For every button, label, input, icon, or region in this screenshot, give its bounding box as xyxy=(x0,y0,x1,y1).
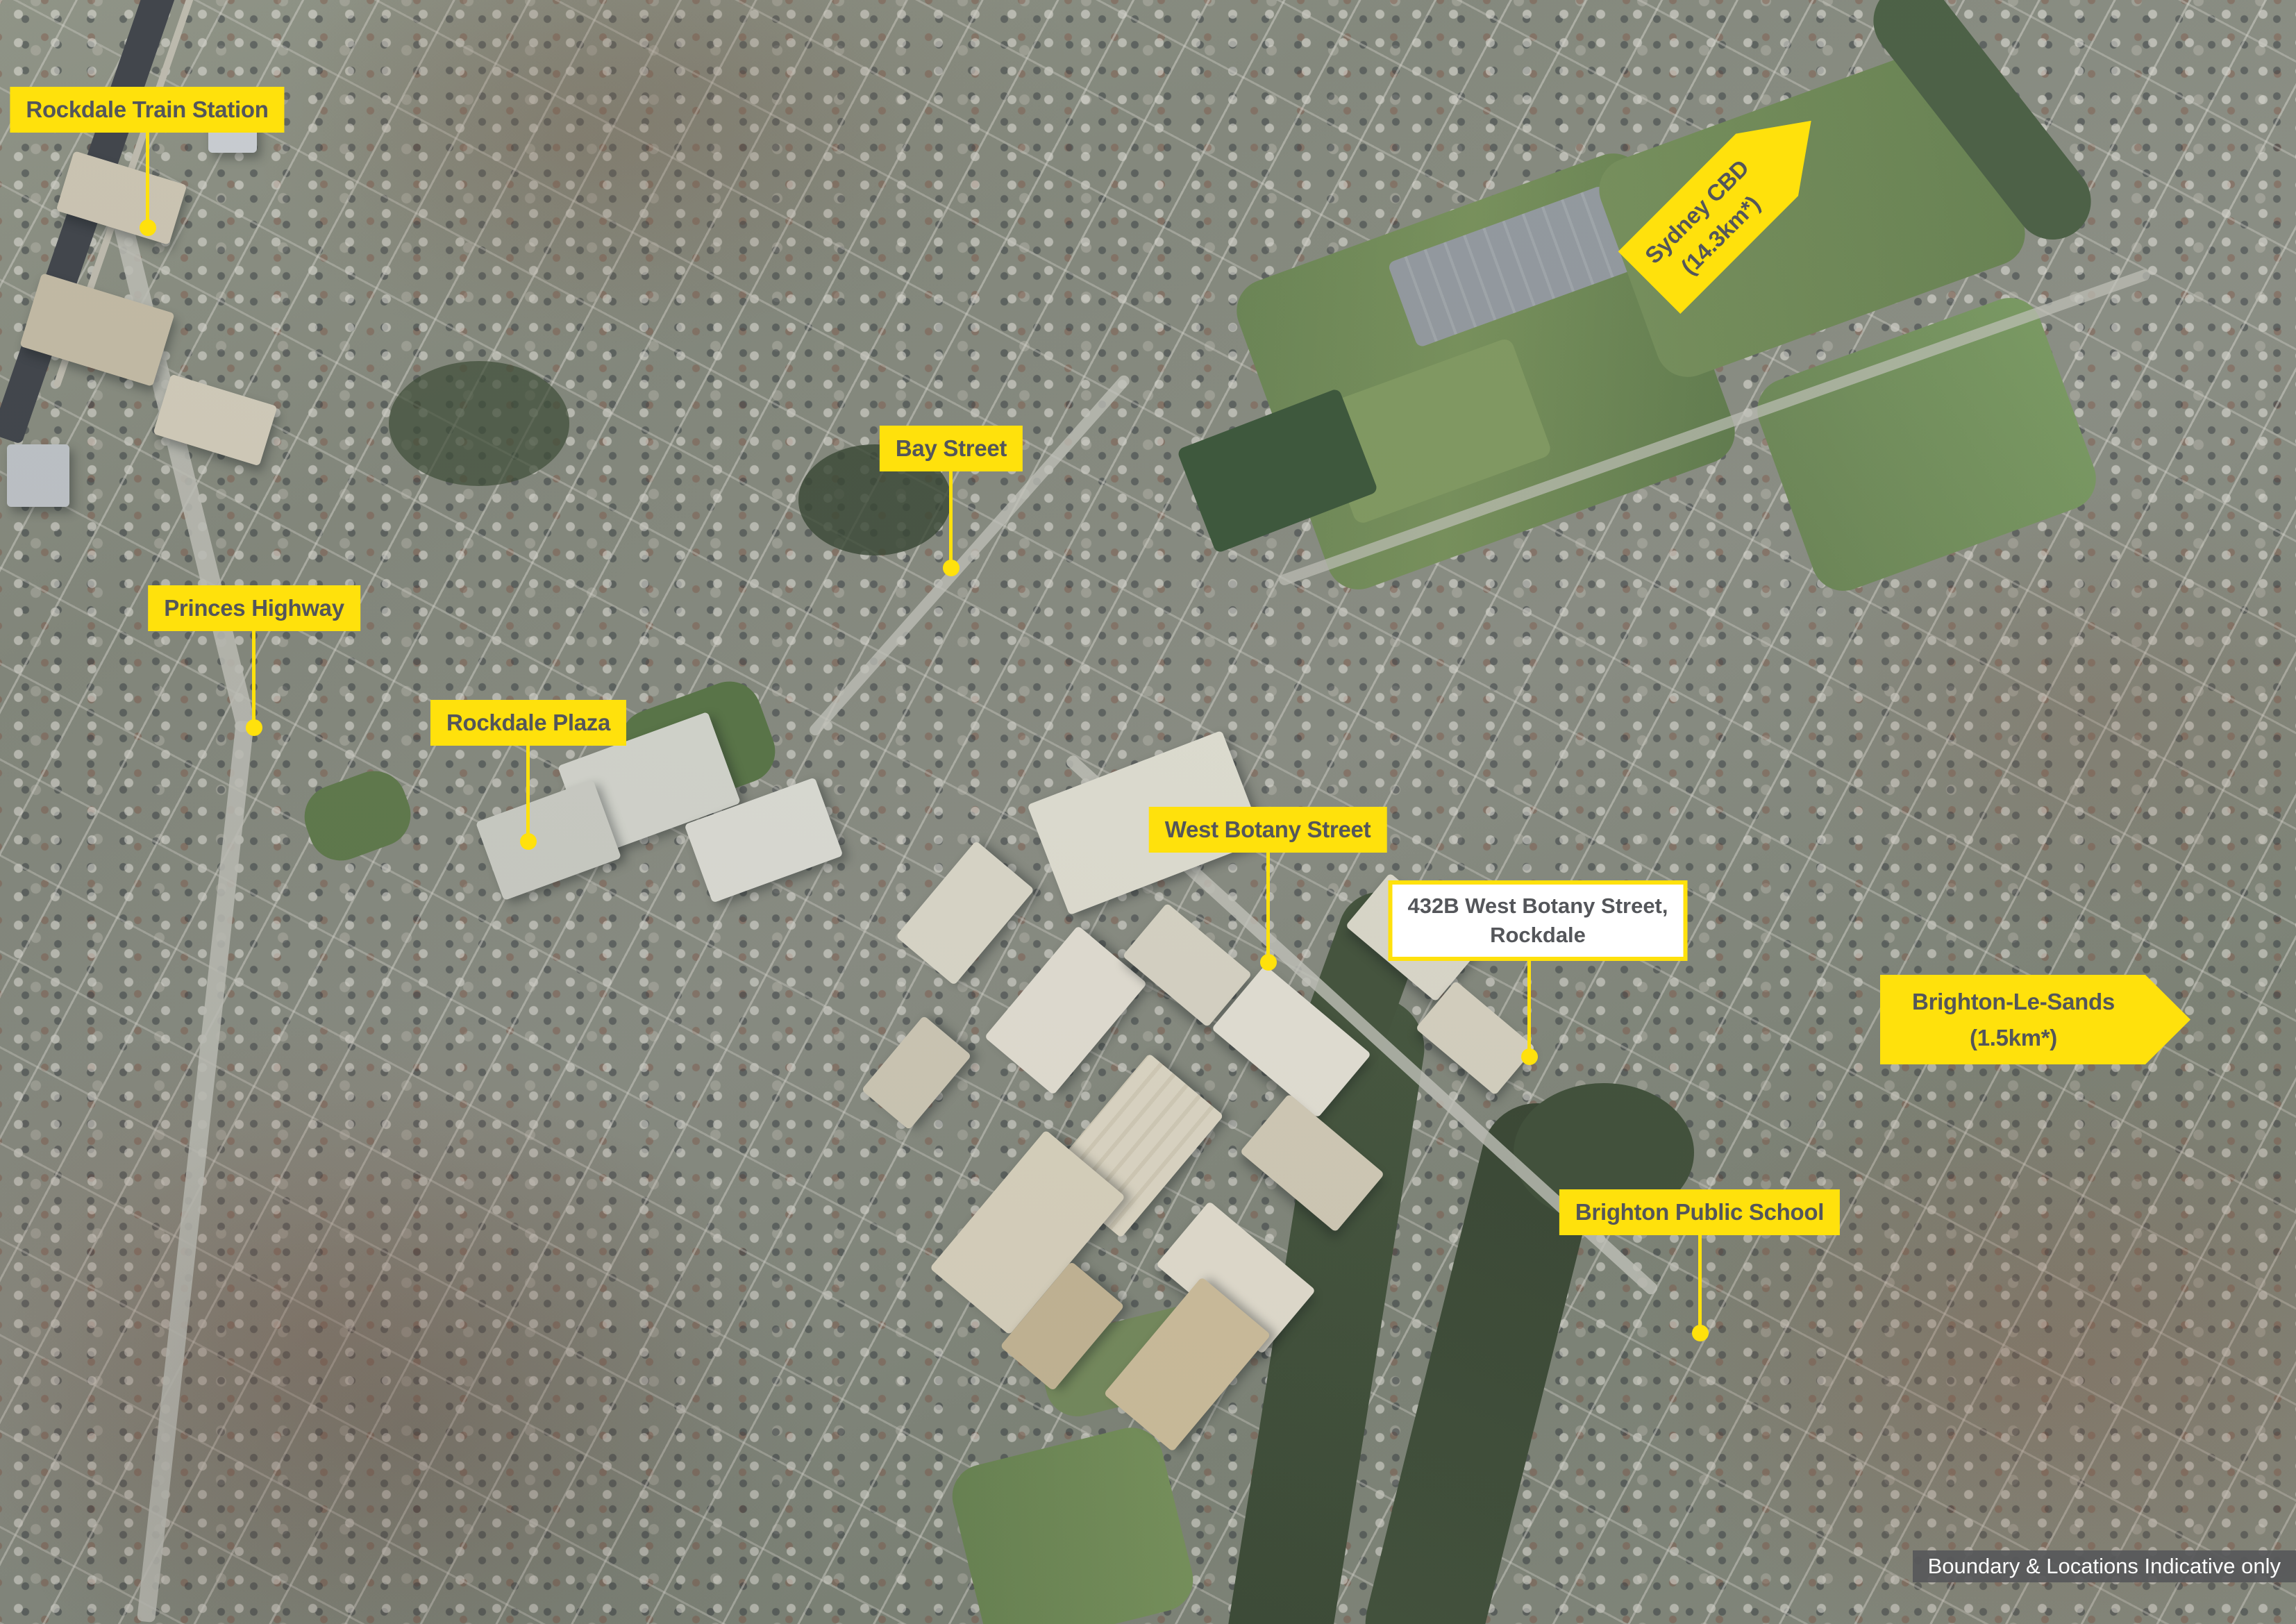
label-brighton-public-school: Brighton Public School xyxy=(1559,1189,1840,1235)
map-tint xyxy=(0,1007,764,1624)
pointer-bay-street xyxy=(949,470,953,568)
pointer-west-botany-street xyxy=(1266,851,1270,962)
pointer-brighton-public-school xyxy=(1698,1233,1702,1333)
label-west-botany-street: West Botany Street xyxy=(1149,807,1387,853)
map-building-tower xyxy=(7,444,69,507)
brighton-le-sands-line1: Brighton-Le-Sands xyxy=(1912,989,2115,1015)
map-trees xyxy=(389,361,569,486)
map-tint xyxy=(1632,1076,2296,1624)
disclaimer-text: Boundary & Locations Indicative only xyxy=(1928,1554,2281,1579)
subject-site-line1: 432B West Botany Street, xyxy=(1408,891,1668,921)
label-subject-site: 432B West Botany Street, Rockdale xyxy=(1389,880,1688,961)
arrow-brighton-le-sands: Brighton-Le-Sands (1.5km*) xyxy=(1880,975,2190,1064)
pointer-rockdale-plaza xyxy=(526,744,530,842)
label-princes-highway: Princes Highway xyxy=(148,585,360,631)
subject-site-line2: Rockdale xyxy=(1408,921,1668,950)
label-rockdale-plaza: Rockdale Plaza xyxy=(430,700,626,746)
aerial-map: Rockdale Train Station Bay Street Prince… xyxy=(0,0,2296,1624)
pointer-subject-site xyxy=(1527,959,1531,1057)
label-rockdale-train-station: Rockdale Train Station xyxy=(10,87,284,133)
disclaimer-bar: Boundary & Locations Indicative only xyxy=(1913,1550,2296,1582)
map-tint xyxy=(250,0,910,361)
label-bay-street: Bay Street xyxy=(880,426,1023,471)
brighton-le-sands-line2: (1.5km*) xyxy=(1970,1025,2057,1051)
pointer-princes-highway xyxy=(252,629,255,728)
pointer-rockdale-train-station xyxy=(146,131,149,228)
